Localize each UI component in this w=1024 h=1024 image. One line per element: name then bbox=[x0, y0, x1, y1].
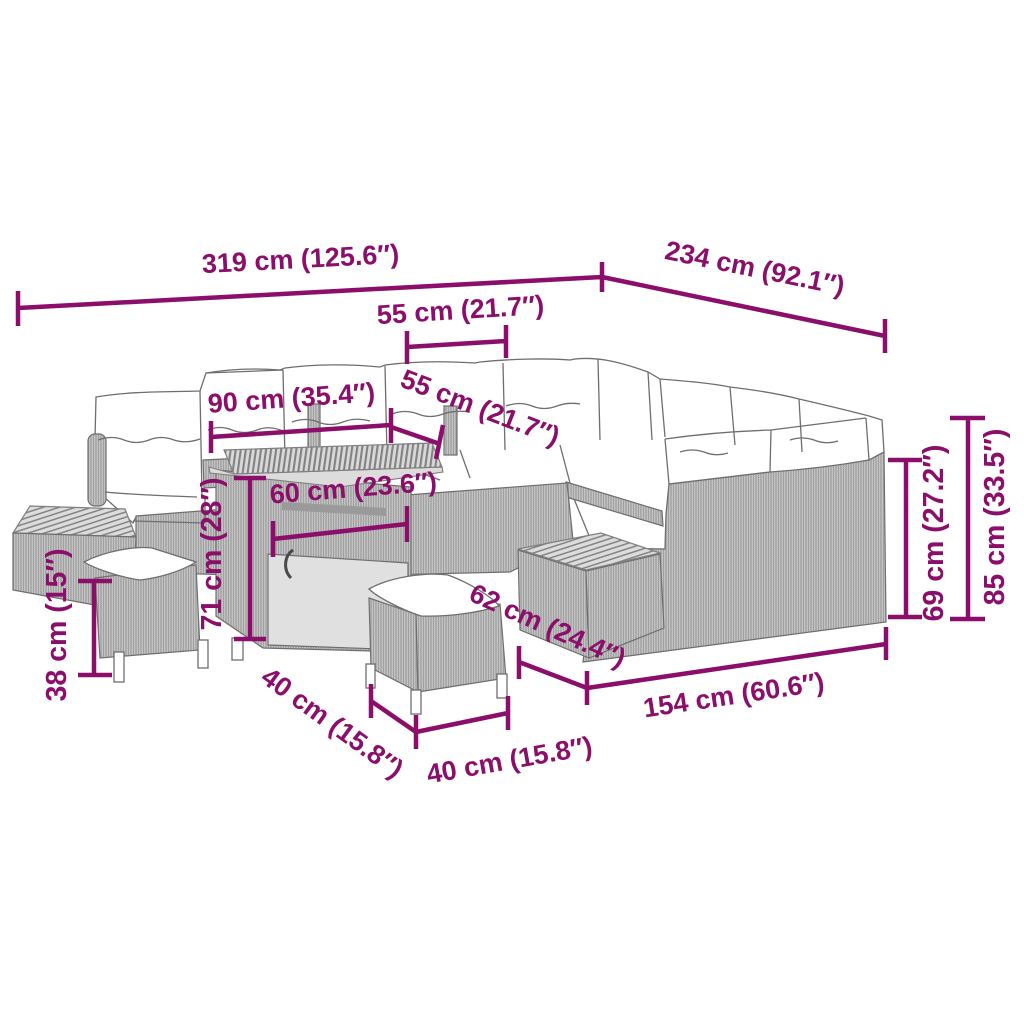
svg-text:90 cm (35.4″): 90 cm (35.4″) bbox=[207, 377, 376, 419]
svg-text:234 cm (92.1″): 234 cm (92.1″) bbox=[662, 235, 847, 301]
svg-text:60 cm (23.6″): 60 cm (23.6″) bbox=[269, 467, 438, 510]
svg-text:38 cm (15″): 38 cm (15″) bbox=[41, 548, 73, 701]
svg-text:40 cm (15.8″): 40 cm (15.8″) bbox=[256, 661, 409, 784]
svg-text:69 cm (27.2″): 69 cm (27.2″) bbox=[918, 445, 950, 622]
svg-text:40 cm (15.8″): 40 cm (15.8″) bbox=[424, 731, 594, 790]
svg-text:85 cm (33.5″): 85 cm (33.5″) bbox=[979, 429, 1011, 606]
svg-text:62 cm (24.4″): 62 cm (24.4″) bbox=[465, 578, 630, 674]
svg-text:55 cm (21.7″): 55 cm (21.7″) bbox=[376, 290, 545, 330]
svg-text:71 cm (28″): 71 cm (28″) bbox=[196, 477, 228, 630]
svg-text:319 cm (125.6″): 319 cm (125.6″) bbox=[201, 239, 400, 279]
